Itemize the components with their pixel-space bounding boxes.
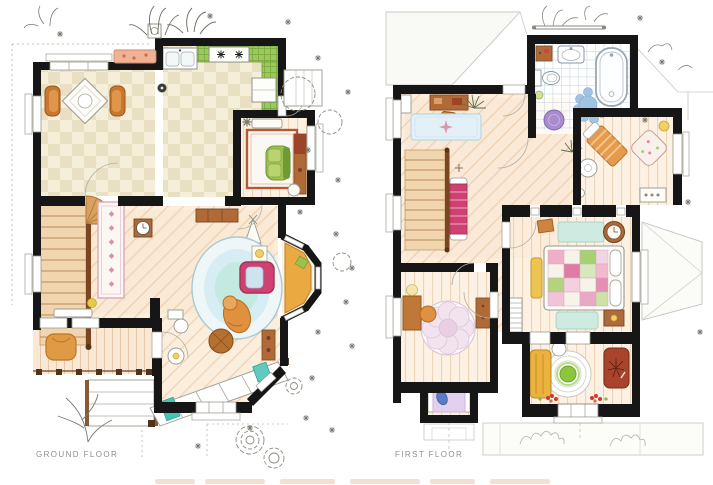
- office-shelf: [401, 95, 411, 113]
- roof-top-left: [386, 12, 527, 85]
- green-stool: [535, 91, 543, 99]
- stove-burner-icon: [235, 51, 243, 59]
- round-side-table: [604, 222, 625, 243]
- purple-stool: [544, 110, 564, 130]
- vanity-table: [640, 188, 666, 202]
- round-ottoman: [209, 329, 233, 353]
- front-bench: [54, 309, 92, 317]
- round-table: [552, 342, 566, 356]
- porch-armchair: [46, 334, 76, 360]
- kids-lamp: [407, 285, 418, 296]
- stove-burner-icon: [217, 51, 225, 59]
- flower-box: [114, 50, 156, 63]
- study-plant-icon: [243, 118, 252, 127]
- stair-rail: [445, 150, 450, 250]
- bathroom-sink: [558, 46, 584, 63]
- pink-armchair: [240, 262, 274, 293]
- red-armchair: [604, 348, 629, 388]
- ground-floor-label: GROUND FLOOR: [36, 450, 118, 459]
- bathtub: [596, 48, 627, 106]
- porch-steps: [85, 380, 158, 426]
- refrigerator: [252, 78, 276, 102]
- towel-rail: [532, 26, 605, 29]
- corner-plant: [24, 6, 58, 28]
- nightstand: [604, 310, 624, 326]
- stove: [209, 47, 249, 62]
- console-table: [262, 330, 275, 360]
- floor-plan-canvas: [0, 0, 713, 485]
- office-desk: [430, 95, 468, 110]
- patchwork-bed: [544, 246, 624, 310]
- teal-rug-top: [558, 222, 604, 242]
- side-table-lamp: [168, 348, 184, 364]
- teal-rug-bottom: [556, 312, 598, 329]
- roof-dormer-right: [642, 222, 702, 320]
- sitting-table: [579, 159, 597, 177]
- sideboard: [196, 209, 238, 222]
- agave-plant: [129, 6, 216, 35]
- closet-stool: [537, 219, 554, 233]
- closet-wall: [502, 205, 640, 217]
- ground-floor-plan: [12, 6, 355, 468]
- hall-runner-rug: [98, 202, 124, 298]
- quilt: [548, 250, 608, 306]
- hall-clock-table: [134, 219, 152, 237]
- first-floor-plan: [386, 6, 713, 455]
- study-green-armchair: [266, 146, 290, 180]
- study-stool: [288, 184, 300, 196]
- walkway-dashed: [142, 424, 288, 458]
- foot-bench: [531, 258, 542, 298]
- dining-chair-right: [110, 86, 125, 116]
- yellow-sofa: [530, 350, 551, 398]
- window-sill: [46, 54, 112, 61]
- kitchen-floor-lower: [163, 110, 233, 197]
- bathroom-cabinet: [536, 46, 552, 61]
- front-door: [152, 332, 162, 358]
- floor-plan-illustration: GROUND FLOOR FIRST FLOOR: [0, 0, 713, 485]
- study-bench: [252, 119, 282, 128]
- magenta-daybed: [450, 178, 467, 240]
- lamp-icon: [659, 121, 669, 131]
- dining-chair-left: [45, 86, 60, 116]
- toilet: [534, 70, 560, 86]
- pillow: [610, 250, 621, 276]
- lamp-table: [252, 246, 267, 261]
- kids-chair: [420, 306, 436, 322]
- first-floor-label: FIRST FLOOR: [395, 450, 463, 459]
- kitchen-sink: [163, 48, 197, 69]
- pillow: [610, 280, 621, 306]
- yellow-ball: [88, 299, 97, 308]
- kids-cabinet: [476, 298, 490, 328]
- star-rug: [411, 114, 481, 140]
- back-door-landing: [284, 70, 322, 106]
- cropped-caption-watermark: [155, 479, 550, 484]
- spiral-rug: [545, 351, 591, 397]
